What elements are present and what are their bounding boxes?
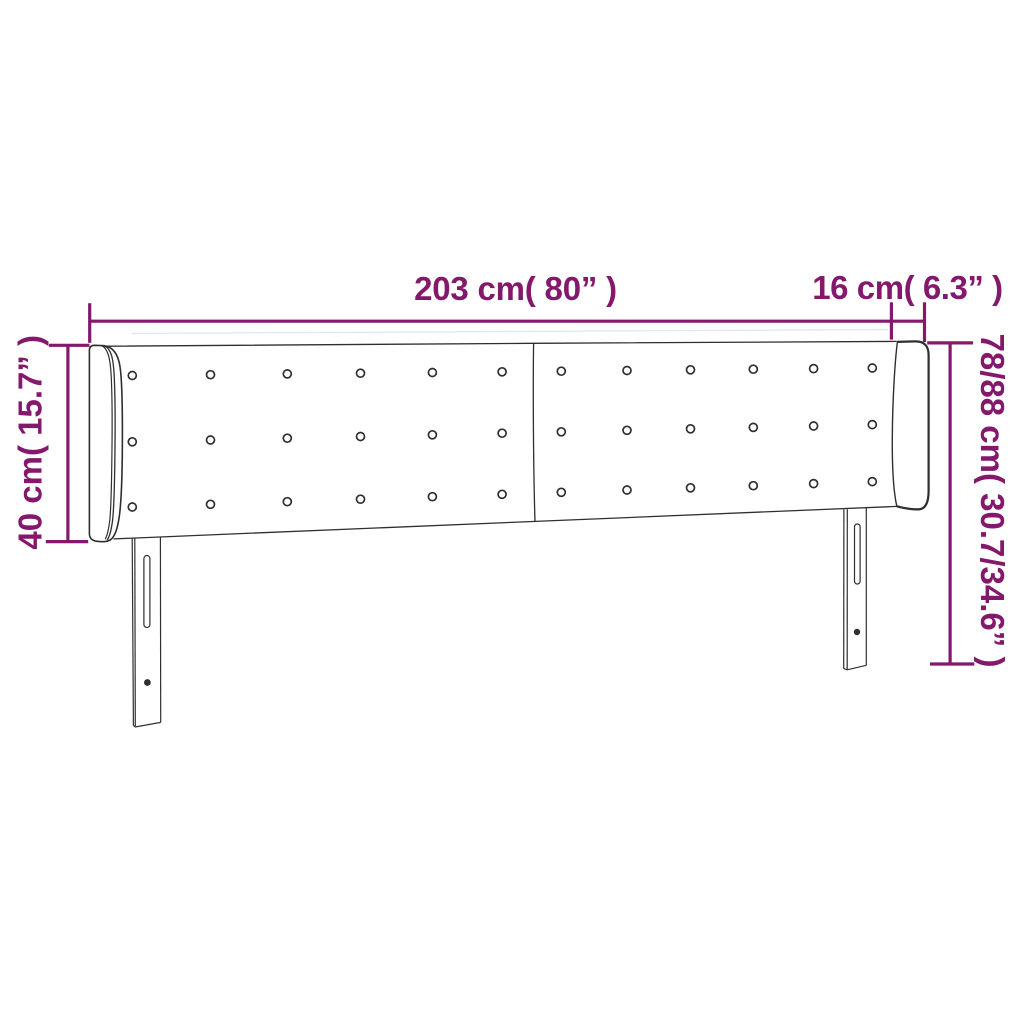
svg-text:16 cm( 6.3” ): 16 cm( 6.3” ) xyxy=(812,269,1002,306)
svg-text:78/88 cm( 30.7/34.6” ): 78/88 cm( 30.7/34.6” ) xyxy=(974,334,1011,668)
svg-text:203 cm( 80” ): 203 cm( 80” ) xyxy=(414,270,617,307)
svg-text:40 cm( 15.7” ): 40 cm( 15.7” ) xyxy=(12,335,49,550)
